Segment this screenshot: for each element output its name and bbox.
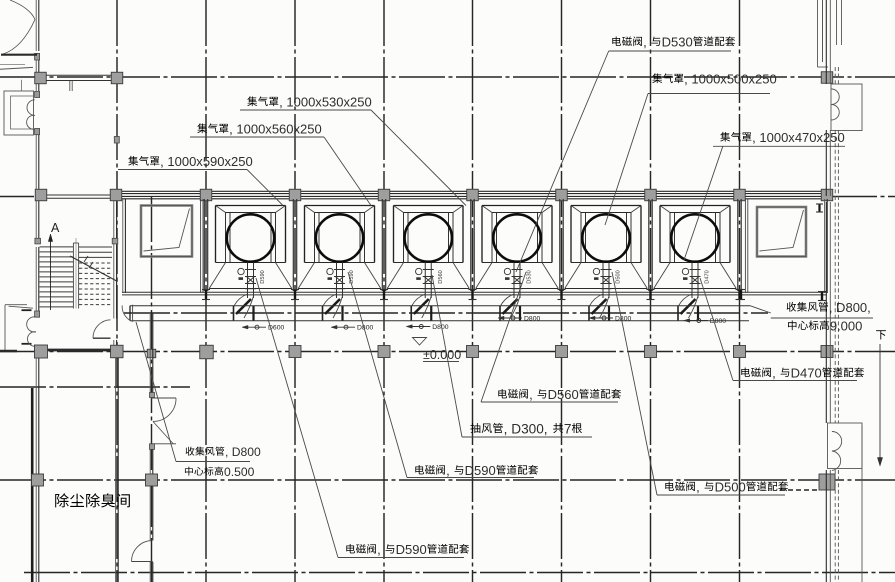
svg-text:,: , [377,542,381,557]
svg-text:D800: D800 [432,324,448,331]
svg-text:, 1000x590x250: , 1000x590x250 [160,154,253,169]
svg-text:D590: D590 [396,542,427,557]
svg-text:D560: D560 [548,387,579,402]
svg-text:D800: D800 [524,316,540,323]
svg-text:,: , [446,463,450,478]
svg-text:D560: D560 [438,270,444,283]
svg-text:, 1000x500x250: , 1000x500x250 [684,72,777,87]
svg-text:, D800,: , D800, [829,300,871,315]
svg-text:, 1000x560x250: , 1000x560x250 [229,122,322,137]
svg-text:,: , [643,35,647,50]
svg-text:, D300,: , D300, [504,422,548,437]
svg-text:D500: D500 [616,270,622,283]
svg-text:A: A [51,221,60,235]
svg-text:9.000: 9.000 [830,319,863,334]
svg-text:D470: D470 [705,270,711,283]
svg-text:, D800: , D800 [225,445,261,459]
svg-text:0.500: 0.500 [224,465,255,479]
svg-text:D530: D530 [527,270,533,283]
svg-text:D500: D500 [715,480,746,495]
svg-text:D590: D590 [260,270,266,283]
svg-text:D590: D590 [465,463,496,478]
svg-text:D470: D470 [791,366,822,381]
svg-text:,: , [529,387,533,402]
svg-text:, 1000x470x250: , 1000x470x250 [752,130,845,145]
svg-text:D530: D530 [662,35,693,50]
svg-text:D800: D800 [710,318,726,325]
svg-text:7: 7 [564,422,572,437]
svg-text:±0.000: ±0.000 [423,348,461,362]
svg-text:, 1000x530x250: , 1000x530x250 [279,95,372,110]
svg-text:,: , [772,366,776,381]
svg-text:D800: D800 [615,316,631,323]
svg-text:,: , [696,480,700,495]
